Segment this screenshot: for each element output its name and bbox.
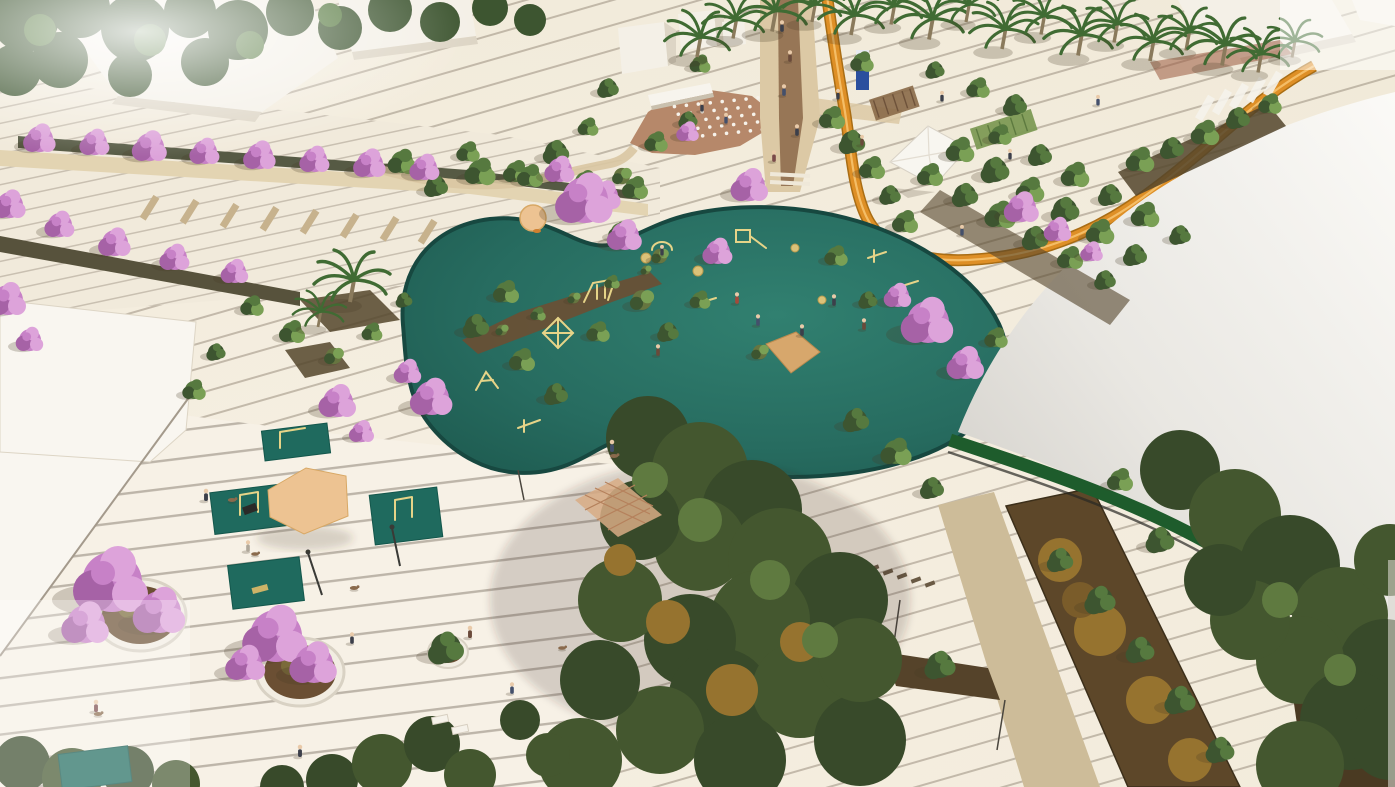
park-render — [0, 0, 1395, 787]
flat-roof-left — [0, 300, 196, 462]
